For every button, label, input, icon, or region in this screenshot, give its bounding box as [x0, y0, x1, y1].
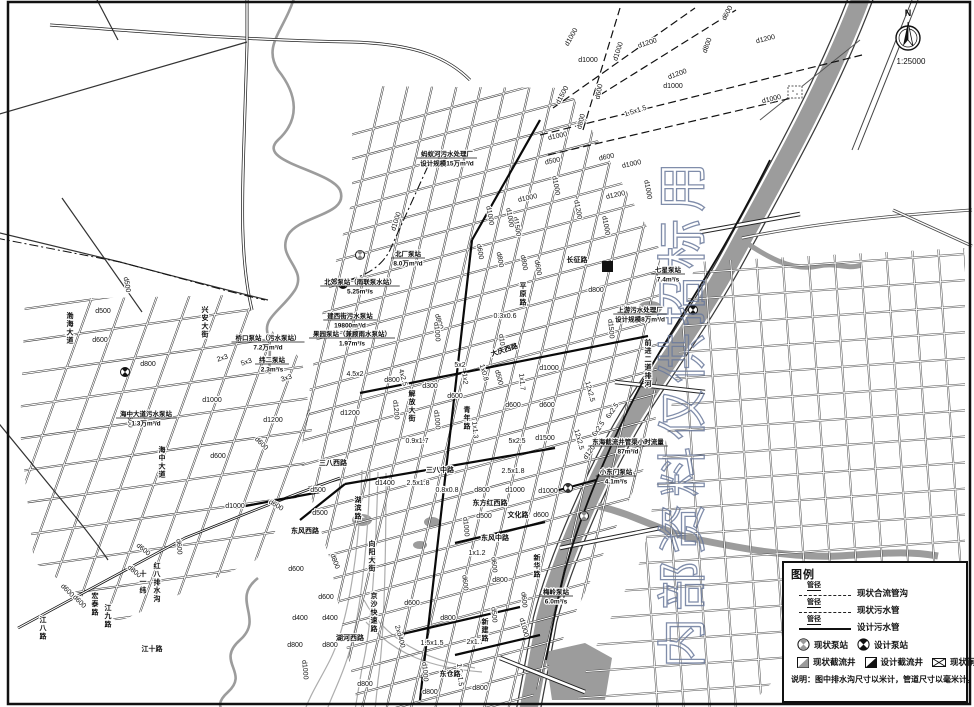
street-name-label: 前进二道排河: [645, 338, 652, 388]
north-label: N: [905, 8, 912, 18]
pipe-diameter-label: 5x2.5: [508, 438, 525, 445]
legend-dia-label: 管径: [807, 599, 821, 608]
pipe-diameter-label: 2.5x1.8: [407, 480, 430, 487]
callout-value: 8.0万m³/d: [393, 260, 422, 268]
street-name-label: 平原路: [520, 282, 528, 306]
callout-value: 7.4m³/s: [657, 277, 680, 284]
callout-value: 1.97m³/s: [339, 341, 365, 348]
pipe-diameter-label: d400: [322, 615, 338, 622]
facility-block: [602, 261, 613, 272]
treatment-plant-symbol: [788, 86, 802, 98]
legend-point-item: 现状闸门井: [932, 656, 974, 668]
street-name-label: 新建路: [482, 617, 490, 642]
legend-dia-label: 管径: [807, 582, 821, 591]
pipe-diameter-label: d800: [357, 681, 373, 688]
gate-well-icon: [932, 658, 946, 667]
legend-point-item: 现状截流井: [797, 656, 856, 668]
pipe-diameter-label: d1200: [263, 417, 283, 424]
legend-line-name: 设计污水管: [857, 621, 900, 633]
legend-line-row: 管径 现状合流管沟: [799, 582, 959, 599]
pipe-diameter-label: d600: [174, 539, 182, 555]
legend-point-name: 设计泵站: [874, 639, 908, 651]
pipe-diameter-label: d1500: [535, 435, 555, 442]
legend-line-style-dashdot: [799, 612, 851, 613]
street-name-label: 长征路: [567, 255, 589, 264]
legend-line-sample: 管径: [799, 600, 851, 616]
callout-name: 小东门泵站: [599, 467, 633, 476]
pipe-diameter-label: d800: [440, 615, 456, 622]
callout-value: 设计规模15万m³/d: [420, 159, 473, 168]
pump-station-symbol: [121, 367, 130, 376]
callout-value: 1.3万m³/d: [131, 420, 160, 428]
pipe-diameter-label: d1000: [225, 503, 245, 510]
pipe-diameter-label: 0.8x0.8: [436, 487, 459, 494]
pipe-diameter-label: 1x2: [461, 373, 469, 385]
callout: 北厂泵站8.0万m³/d: [391, 249, 425, 268]
pipe-diameter-label: d1000: [539, 365, 559, 372]
callout-value: 6.0m³/s: [545, 599, 568, 606]
legend-line-rows: 管径 现状合流管沟 管径 现状污水管 管径 设计污水管: [791, 582, 959, 633]
pipe-diameter-label: d800: [422, 689, 438, 696]
pipe-diameter-label: 2.5x1.8: [502, 468, 525, 475]
pipe-diameter-label: 1x1.3: [470, 421, 478, 439]
legend-line-sample: 管径: [799, 583, 851, 599]
pipe-diameter-label: d600: [92, 337, 108, 344]
street-name-label: 江八路: [39, 615, 48, 640]
legend-point-item: 设计截流井: [865, 656, 924, 668]
legend-line-style-solid: [799, 628, 851, 630]
callout-value: 87m³/d: [618, 449, 639, 456]
street-name-label: 兴安大街: [201, 305, 209, 339]
legend-line-name: 现状合流管沟: [857, 587, 908, 599]
pipe-diameter-label: 4.5x2: [346, 371, 363, 378]
pipe-diameter-label: d800: [472, 685, 488, 692]
pipe-diameter-label: d600: [505, 402, 521, 409]
pipe-diameter-label: d800: [474, 487, 490, 494]
pipe-diameter-label: d1000: [663, 83, 683, 90]
legend-point-name: 现状截流井: [813, 656, 856, 668]
street-name-label: 东方红西路: [473, 498, 509, 507]
pump-station-symbol: [580, 511, 589, 520]
street-name-label: 文化路: [508, 510, 530, 519]
street-name-label: 江十路: [142, 644, 164, 653]
pipe-diameter-label: d600: [404, 600, 420, 607]
street-name-label: 东风中路: [481, 533, 510, 542]
well-design-icon: [865, 657, 877, 668]
pump-design-icon: [857, 638, 870, 651]
pipe-diameter-label: d800: [322, 642, 338, 649]
street-name-label: 三八西路: [319, 458, 348, 467]
callout-name: 北厂泵站: [395, 249, 422, 258]
pipe-diameter-label: d300: [422, 383, 438, 390]
legend-note: 说明：图中排水沟尺寸以米计，管道尺寸以毫米计。: [791, 674, 959, 685]
street-name-label: 海中大道: [159, 445, 166, 479]
pipe-diameter-label: 0.3x0.6: [494, 313, 517, 320]
pipe-diameter-label: d500: [95, 308, 111, 315]
pipe-diameter-label: d500: [476, 513, 492, 520]
pipe-diameter-label: 5x2: [454, 362, 465, 369]
pipe-diameter-label: d1400: [375, 480, 395, 487]
street-name-label: 湖河西路: [336, 633, 365, 642]
well-existing-icon: [797, 657, 809, 668]
street-name-label: 解放大街: [408, 389, 417, 423]
legend-point-item: 设计泵站: [857, 638, 908, 651]
pipe-diameter-label: d1200: [340, 410, 360, 417]
callout-name: 纬二泵站: [259, 355, 286, 364]
pipe-diameter-label: d1000: [505, 487, 525, 494]
callout-name: 梅岭泵站: [543, 587, 570, 596]
drainage-plan-map: 内部资料仅供招标用 d1000d1200d1000d1000d1200d1000…: [0, 0, 974, 707]
pipe-diameter-label: d600: [288, 566, 304, 573]
street-name-label: 京沙快速路: [371, 591, 379, 633]
pipe-diameter-label: d1000: [202, 397, 222, 404]
callout-name: 果园泵站（兼顾雨水泵站）: [312, 329, 391, 338]
legend-line-name: 现状污水管: [857, 604, 900, 616]
pipe-diameter-label: d500: [312, 510, 328, 517]
pipe-diameter-label: d600: [539, 402, 555, 409]
pipe-diameter-label: 1.5x1.5: [421, 640, 444, 647]
street-name-label: 红八排水沟: [153, 561, 162, 603]
callout-name: 建西街污水泵站: [326, 311, 373, 320]
pipe-diameter-label: d600: [318, 594, 334, 601]
pipe-diameter-label: 1x1.7: [517, 373, 525, 391]
pipe-diameter-label: d800: [287, 642, 303, 649]
legend-title: 图例: [791, 566, 959, 582]
street-name-label: 向阳大街: [368, 539, 376, 573]
pipe-diameter-label: d600: [210, 453, 226, 460]
callout-name: 上游污水处理厂: [617, 305, 663, 314]
pipe-diameter-label: d800: [384, 377, 400, 384]
plant-dot: [792, 90, 794, 92]
callout-name: 蚂蚁河污水处理厂: [421, 149, 474, 158]
pipe-diameter-label: d800: [588, 287, 604, 294]
callout: 上游污水处理厂设计规模8万m³/d: [613, 305, 667, 324]
legend-point-name: 设计截流井: [881, 656, 924, 668]
legend-line-row: 管径 现状污水管: [799, 599, 959, 616]
pipe-diameter-label: d600: [460, 575, 468, 591]
pump-station-symbol: [356, 250, 365, 259]
callout-value: 19800m³/d: [334, 323, 366, 330]
legend-line-row: 管径 设计污水管: [799, 616, 959, 633]
plant-dot: [796, 93, 798, 95]
legend-dia-label: 管径: [807, 616, 821, 625]
callout-value: 7.2万m³/d: [253, 344, 282, 352]
street-name-label: 渤海大道: [67, 311, 74, 345]
legend: 图例 管径 现状合流管沟 管径 现状污水管 管径 设计污水管 现状泵站 设计泵站…: [782, 561, 968, 703]
pipe-diameter-label: d500: [310, 487, 326, 494]
callout-name: 东海截流井管渠小时流量: [592, 437, 664, 446]
street-name-label: 江九路: [104, 603, 113, 628]
pipe-diameter-label: d1000: [538, 488, 558, 495]
street-name-label: 十一纬: [140, 569, 147, 594]
callout-name: 海中大道污水泵站: [120, 409, 173, 418]
street-name-label: 青年路: [464, 405, 472, 430]
street-name-label: 东风西路: [291, 526, 320, 535]
legend-point-name: 现状泵站: [814, 639, 848, 651]
pipe-diameter-label: d1000: [578, 57, 598, 64]
legend-point-row: 现状截流井 设计截流井 现状闸门井: [797, 656, 959, 668]
callout-name: 桥口泵站（污水泵站）: [236, 333, 301, 342]
pipe-diameter-label: d600: [489, 557, 497, 573]
callout-value: 2.3m³/s: [261, 367, 284, 374]
pipe-diameter-label: d800: [492, 577, 508, 584]
watermark-text: 内部资料仅供招标用: [655, 155, 711, 668]
pipe-diameter-label: d500: [489, 607, 497, 623]
street-name-label: 三八中路: [426, 465, 455, 474]
pipe-diameter-label: d600: [533, 512, 549, 519]
scale-label: 1:25000: [897, 57, 926, 66]
street-name-label: 新华路: [534, 553, 542, 578]
callout-value: 设计规模8万m³/d: [615, 315, 665, 324]
plant-box: [788, 86, 802, 98]
legend-point-rows: 现状泵站 设计泵站 现状截流井 设计截流井 现状闸门井: [791, 638, 959, 668]
callout-name: 北郊泵站（雨联泵水站）: [324, 277, 396, 286]
callout-name: 七星泵站: [655, 265, 682, 274]
street-name-label: 东仓路: [440, 669, 462, 678]
legend-point-row: 现状泵站 设计泵站: [797, 638, 959, 651]
street-name-label: 宏泰路: [91, 591, 100, 616]
callout-value: 4.1m³/s: [605, 479, 628, 486]
street-name-label: 湖滨路: [355, 495, 363, 520]
pipe-diameter-label: d800: [140, 361, 156, 368]
pipe-diameter-label: d600: [447, 393, 463, 400]
callout: 蚂蚁河污水处理厂设计规模15万m³/d: [417, 149, 477, 168]
callout-value: 5.25m³/s: [347, 289, 373, 296]
legend-line-style-dashed: [799, 595, 851, 596]
pump-station-symbol: [564, 483, 573, 492]
legend-point-item: 现状泵站: [797, 638, 848, 651]
legend-point-name: 现状闸门井: [950, 656, 974, 668]
pipe-diameter-label: d400: [292, 615, 308, 622]
legend-line-sample: 管径: [799, 617, 851, 633]
pipe-diameter-label: d600: [519, 592, 527, 608]
pipe-diameter-label: 1x1.2: [468, 550, 485, 557]
pump-existing-icon: [797, 638, 810, 651]
pipe-diameter-label: 0.9x1.7: [406, 438, 429, 445]
